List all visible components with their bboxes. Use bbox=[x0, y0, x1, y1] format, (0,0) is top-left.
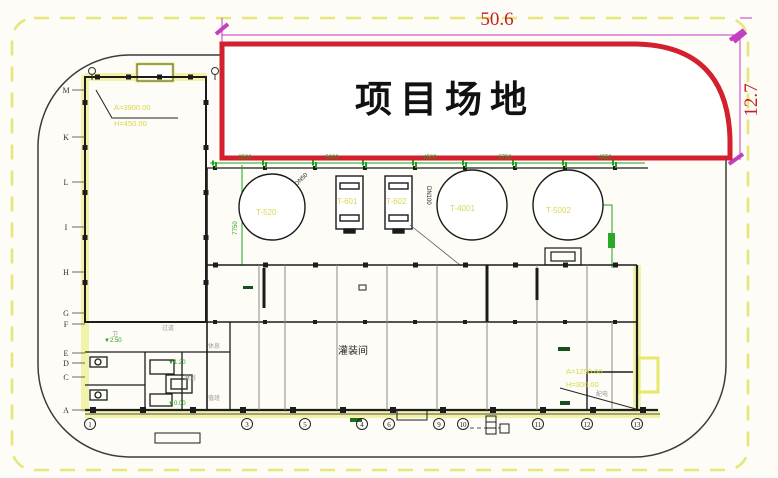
dimension-height-text: 12.7 bbox=[741, 83, 762, 116]
pipe-tag-dn100: DN100 bbox=[425, 186, 431, 205]
green-marker bbox=[608, 233, 615, 248]
tank-label-t520: T-520 bbox=[256, 208, 277, 217]
dimension-width-text: 50.6 bbox=[480, 9, 513, 30]
green-dim-1: 2500 bbox=[238, 155, 252, 161]
axis-left-4: I bbox=[65, 223, 68, 232]
column-grid bbox=[259, 265, 612, 410]
elevation-mark-2: ▼1.20 bbox=[168, 360, 186, 366]
axis-left-10: C bbox=[63, 373, 68, 382]
canopy-highlight bbox=[137, 64, 173, 81]
room-label-2: 卫 bbox=[112, 331, 118, 338]
axis-bottom-2: 3 bbox=[245, 421, 249, 429]
axis-left-11: A bbox=[63, 406, 69, 415]
axis-bottom-9: 12 bbox=[584, 421, 592, 429]
axis-left-9: D bbox=[63, 359, 69, 368]
tank-label-t5002: T-5002 bbox=[546, 206, 571, 215]
tank-label-t601: T-601 bbox=[337, 197, 358, 206]
green-dim-2: 5000 bbox=[325, 155, 339, 161]
green-dim-4: 5750 bbox=[498, 155, 512, 161]
callout-br-line2: H=300.00 bbox=[566, 380, 599, 389]
room-label-4: 休息 bbox=[208, 342, 220, 350]
elevation-mark-1: ▼2.50 bbox=[104, 338, 122, 344]
callout-tl-line2: H=450.00 bbox=[114, 119, 147, 128]
site-plan-drawing: 50.6 12.7 项目场地 2500 5000 4500 5750 4550 … bbox=[0, 0, 778, 478]
axis-left-6: G bbox=[63, 309, 69, 318]
room-label-3: 淋浴 bbox=[184, 374, 196, 382]
axis-left-3: L bbox=[64, 178, 69, 187]
axis-bottom-3: 5 bbox=[303, 421, 307, 429]
axis-bottom-4: 4 bbox=[360, 421, 364, 429]
axis-bottom-5: 6 bbox=[387, 421, 391, 429]
axis-bottom-10: 13 bbox=[634, 421, 642, 429]
project-site-title: 项目场地 bbox=[355, 79, 535, 120]
round-tanks bbox=[239, 170, 603, 240]
axis-bottom-1: 1 bbox=[88, 421, 92, 429]
green-dim-vertical: 7750 bbox=[233, 221, 239, 235]
room-label-5: 值班 bbox=[208, 394, 220, 402]
tank-label-t4001: T-4001 bbox=[450, 204, 475, 213]
axis-left-2: K bbox=[63, 133, 69, 142]
section-marks bbox=[243, 285, 570, 422]
tank-yard-top-wall bbox=[207, 165, 648, 168]
room-label-6: 配电 bbox=[596, 390, 608, 398]
axis-bottom-8: 11 bbox=[535, 421, 542, 429]
axis-bottom-7: 10 bbox=[460, 421, 468, 429]
tank-label-t602: T-602 bbox=[386, 197, 407, 206]
callout-top-left: A=3900.00 H=450.00 bbox=[96, 90, 178, 128]
axis-left-8: E bbox=[64, 349, 69, 358]
axis-left-1: M bbox=[62, 86, 69, 95]
left-building bbox=[85, 77, 206, 322]
green-dim-5: 4550 bbox=[598, 155, 612, 161]
pedestal bbox=[545, 248, 581, 265]
tank-t5002 bbox=[533, 170, 603, 240]
axis-bottom-6: 9 bbox=[437, 421, 441, 429]
bottom-axis: 1 3 5 4 6 9 10 11 12 13 bbox=[85, 419, 643, 430]
callout-br-line1: A=1250.00 bbox=[566, 367, 603, 376]
callout-tl-line1: A=3900.00 bbox=[114, 103, 151, 112]
elevation-mark-3: ▼0.00 bbox=[168, 401, 186, 407]
green-dim-3: 4500 bbox=[423, 155, 437, 161]
axis-left-7: F bbox=[64, 320, 69, 329]
room-label-1: 过道 bbox=[162, 324, 174, 332]
cad-canvas: 50.6 12.7 项目场地 2500 5000 4500 5750 4550 … bbox=[0, 0, 778, 478]
callout-bottom-right: A=1250.00 H=300.00 bbox=[560, 367, 636, 409]
pipe-tag-dn50: DN50 bbox=[294, 172, 310, 188]
axis-left-5: H bbox=[63, 268, 69, 277]
room-label-main: 灌装间 bbox=[338, 344, 368, 357]
